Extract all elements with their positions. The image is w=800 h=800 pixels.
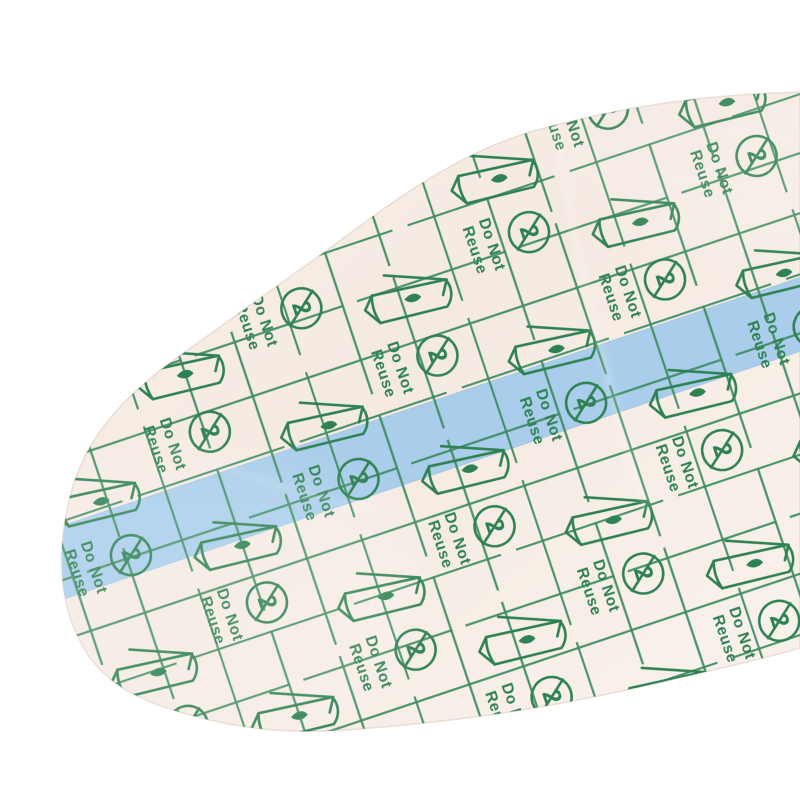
film-dressing-product-photo: 2 Do Not Reuse 2 [0, 0, 800, 800]
product-photo-stage: 2 Do Not Reuse 2 [0, 0, 800, 800]
